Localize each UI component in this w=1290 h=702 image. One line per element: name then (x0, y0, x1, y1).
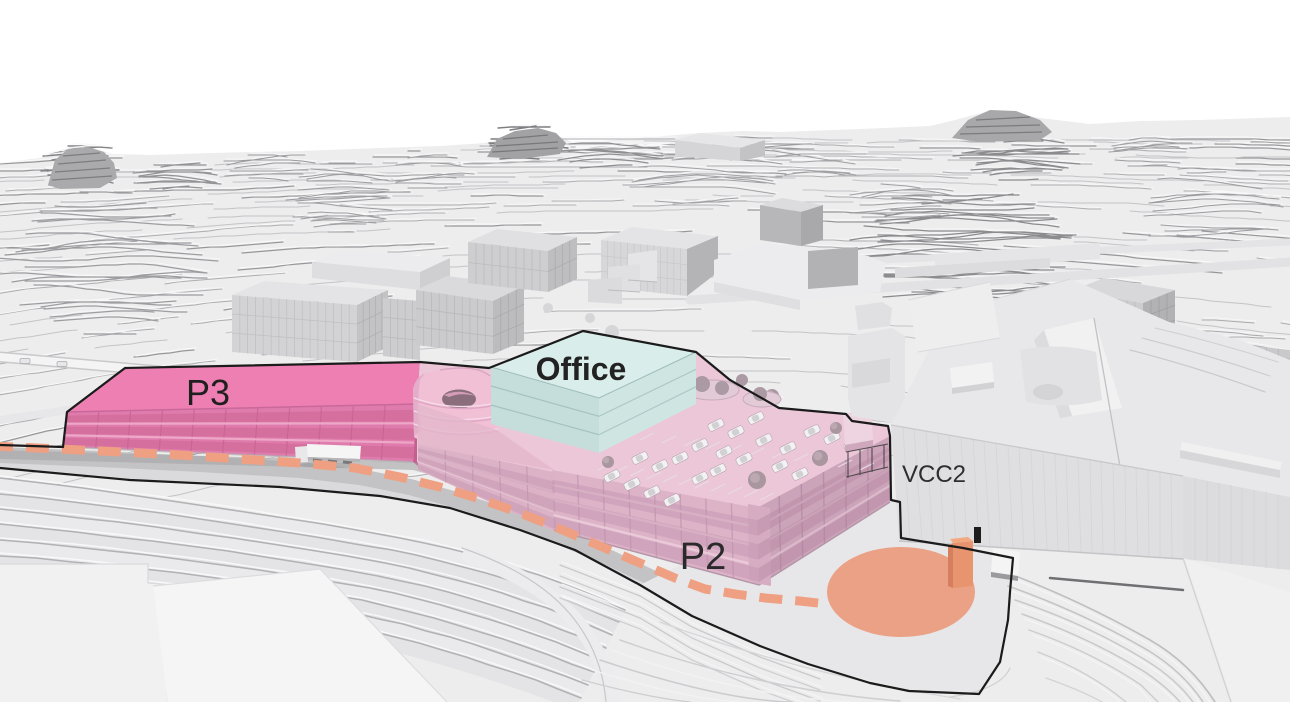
svg-text:P3: P3 (186, 372, 230, 413)
svg-text:P2: P2 (680, 536, 726, 578)
svg-text:VCC2: VCC2 (902, 461, 966, 488)
svg-text:Office: Office (536, 351, 627, 387)
